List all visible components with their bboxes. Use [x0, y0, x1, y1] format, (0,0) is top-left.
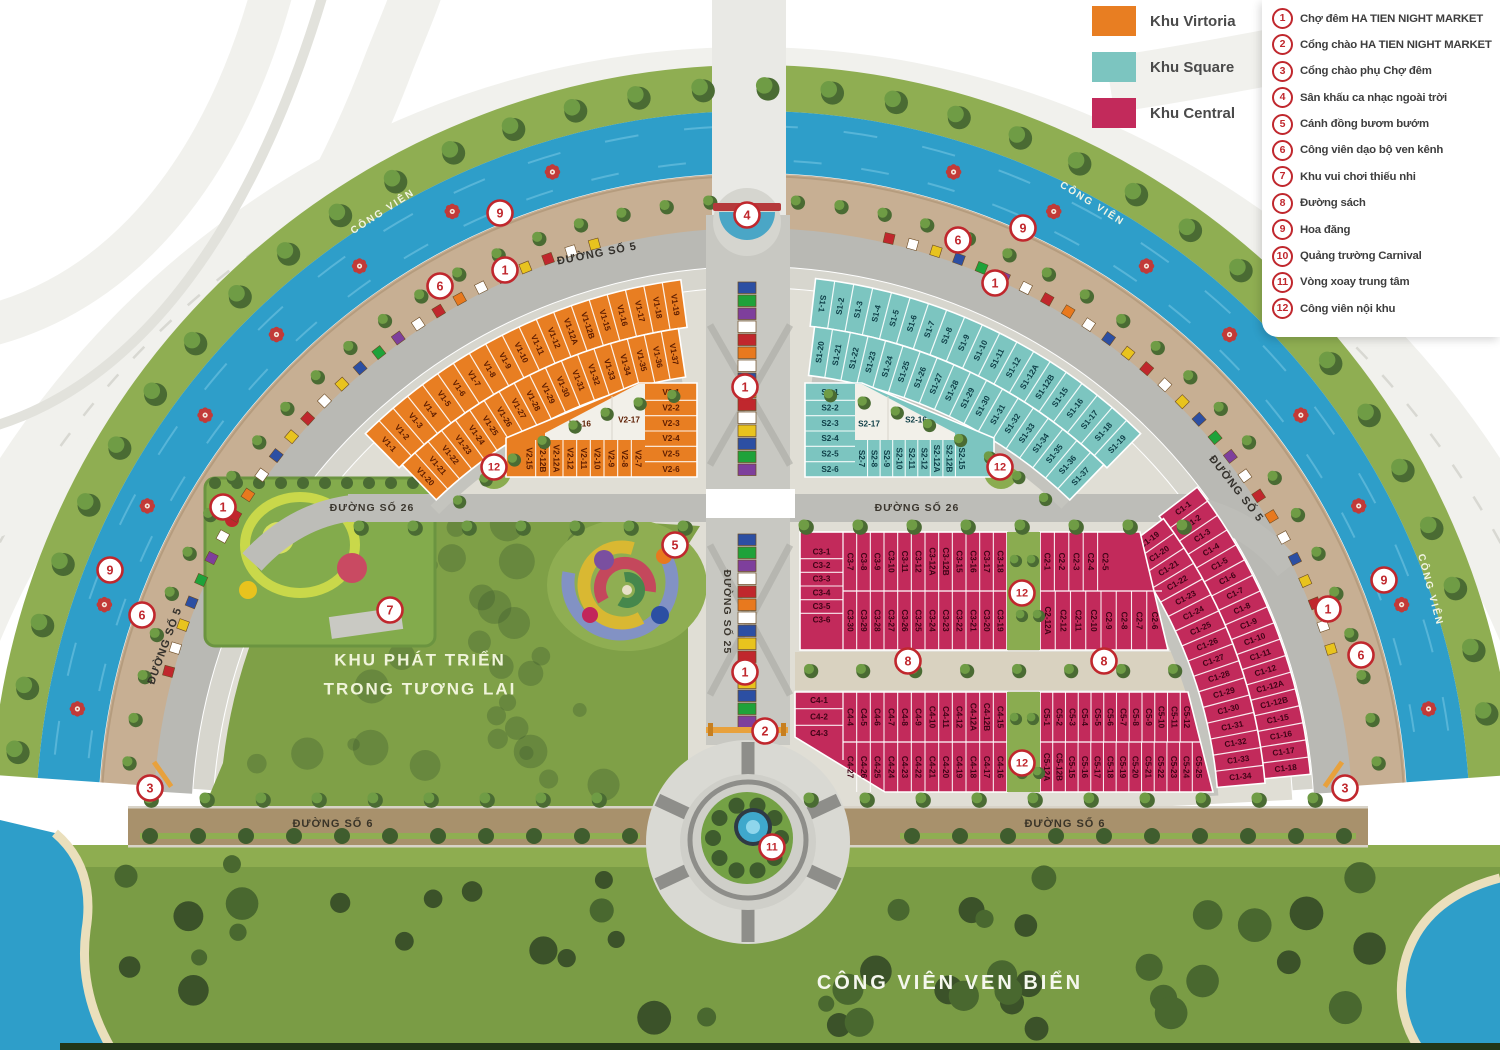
- map-text: V2-5: [662, 450, 680, 459]
- map-text: C3-12B: [941, 547, 950, 575]
- map-text: C3-12: [914, 550, 923, 573]
- map-text: C2-1: [1043, 553, 1052, 571]
- map-text: C5-5: [1093, 708, 1102, 726]
- map-text: 1: [742, 666, 749, 680]
- map-text: ĐƯỜNG SỐ 26: [330, 500, 415, 514]
- lantern-flower-icon: [1293, 407, 1309, 423]
- zone-color-legend: Khu VirtoriaKhu SquareKhu Central: [1092, 6, 1236, 144]
- map-text: C3-12A: [927, 547, 936, 575]
- map-text: C2-12: [1058, 609, 1067, 632]
- map-text: C5-17: [1093, 756, 1102, 779]
- map-text: S2-6: [821, 465, 839, 474]
- map-text: C2-4: [1086, 553, 1095, 571]
- legend-item-2: 2Cổng chào HA TIEN NIGHT MARKET: [1272, 34, 1498, 55]
- legend-item-label: Công viên nội khu: [1300, 303, 1395, 315]
- map-text: V2-17: [618, 416, 640, 425]
- map-text: C3-10: [886, 550, 895, 573]
- legend-number-badge: 2: [1272, 34, 1293, 55]
- legend-item-label: Cổng chào phụ Chợ đêm: [1300, 65, 1432, 77]
- lantern-flower-icon: [139, 498, 155, 514]
- map-text: C4-26: [859, 756, 868, 779]
- map-text: 3: [1342, 782, 1349, 796]
- map-text: V2-15: [524, 448, 533, 470]
- legend-item-12: 12Công viên nội khu: [1272, 298, 1498, 319]
- map-marker-4: 4: [735, 203, 760, 228]
- map-marker-9: 9: [98, 558, 123, 583]
- legend-item-label: Đường sách: [1300, 197, 1366, 209]
- map-text: C5-7: [1118, 708, 1127, 726]
- map-marker-9: 9: [1011, 216, 1036, 241]
- legend-number-badge: 1: [1272, 8, 1293, 29]
- map-marker-9: 9: [1372, 568, 1397, 593]
- map-text: C2-6: [1150, 612, 1159, 630]
- map-text: C4-7: [886, 708, 895, 726]
- map-text: C2-10: [1089, 609, 1098, 632]
- map-text: C5-12B: [1055, 753, 1064, 781]
- map-text: S2-11: [907, 448, 916, 470]
- map-text: C4-24: [886, 756, 895, 779]
- map-marker-9: 9: [488, 201, 513, 226]
- legend-number-badge: 11: [1272, 272, 1293, 293]
- zone-legend-row: Khu Central: [1092, 98, 1236, 128]
- zone-label: Khu Central: [1150, 105, 1235, 122]
- map-text: 11: [766, 842, 778, 854]
- map-text: 1: [742, 381, 749, 395]
- map-text: C4-4: [845, 708, 854, 726]
- map-text: S2-9: [882, 450, 891, 468]
- map-text: C4-19: [955, 756, 964, 779]
- map-text: 4: [744, 209, 751, 223]
- lantern-flower-icon: [1222, 327, 1238, 343]
- map-text: C5-8: [1131, 708, 1140, 726]
- map-marker-8: 8: [1092, 649, 1117, 674]
- map-marker-7: 7: [378, 598, 403, 623]
- legend-item-label: Vòng xoay trung tâm: [1300, 276, 1409, 288]
- map-text: TRONG TƯƠNG LAI: [324, 680, 517, 699]
- map-text: C5-9: [1144, 708, 1153, 726]
- map-text: V2-2: [662, 404, 680, 413]
- map-text: C5-3: [1067, 708, 1076, 726]
- legend-item-9: 9Hoa đăng: [1272, 219, 1498, 240]
- lantern-flower-icon: [444, 204, 460, 220]
- legend-item-label: Chợ đêm HA TIEN NIGHT MARKET: [1300, 13, 1483, 25]
- map-text: C4-21: [927, 756, 936, 779]
- lantern-flower-icon: [946, 164, 962, 180]
- map-text: C2-7: [1135, 612, 1144, 630]
- map-text: V2-11: [579, 448, 588, 470]
- map-text: C5-23: [1169, 756, 1178, 779]
- map-text: 12: [994, 462, 1006, 474]
- legend-item-label: Cổng chào HA TIEN NIGHT MARKET: [1300, 39, 1492, 51]
- lantern-flower-icon: [352, 258, 368, 274]
- legend-number-badge: 12: [1272, 298, 1293, 319]
- legend-item-7: 7Khu vui chơi thiếu nhi: [1272, 166, 1498, 187]
- map-text: C3-7: [845, 553, 854, 571]
- map-text: C4-16: [996, 756, 1005, 779]
- map-text: 6: [955, 234, 962, 248]
- map-marker-8: 8: [896, 649, 921, 674]
- map-text: C4-20: [941, 756, 950, 779]
- map-marker-1: 1: [493, 258, 518, 283]
- map-text: C2-2: [1057, 553, 1066, 571]
- map-text: 6: [139, 609, 146, 623]
- map-text: C4-5: [859, 708, 868, 726]
- map-text: 7: [387, 604, 394, 618]
- map-text: C5-22: [1156, 756, 1165, 779]
- map-text: 9: [107, 564, 114, 578]
- map-text: V2-4: [662, 434, 680, 443]
- map-text: 3: [147, 782, 154, 796]
- legend-number-badge: 5: [1272, 114, 1293, 135]
- map-marker-1: 1: [733, 375, 758, 400]
- map-marker-1: 1: [983, 271, 1008, 296]
- zone-legend-row: Khu Virtoria: [1092, 6, 1236, 36]
- map-text: V2-7: [634, 450, 643, 468]
- lantern-flower-icon: [1421, 701, 1437, 717]
- map-text: C2-9: [1104, 612, 1113, 630]
- map-text: C2-12A: [1043, 606, 1052, 634]
- map-text: 8: [905, 655, 912, 669]
- map-text: S2-12B: [945, 445, 954, 473]
- legend-number-badge: 3: [1272, 61, 1293, 82]
- map-text: C3-23: [941, 609, 950, 632]
- lantern-flower-icon: [269, 327, 285, 343]
- map-text: C4-9: [914, 708, 923, 726]
- lantern-flower-icon: [1351, 498, 1367, 514]
- map-text: C4-12B: [982, 703, 991, 731]
- map-text: C4-1: [810, 696, 828, 705]
- map-text: C3-25: [914, 609, 923, 632]
- street-26-east: [790, 494, 1192, 522]
- map-text: C5-18: [1105, 756, 1114, 779]
- map-text: S2-3: [821, 419, 839, 428]
- map-text: 1: [220, 501, 227, 515]
- legend-item-10: 10Quảng trường Carnival: [1272, 246, 1498, 267]
- layer-roundabout: [646, 740, 850, 944]
- map-marker-6: 6: [428, 274, 453, 299]
- legend-item-5: 5Cánh đồng bươm bướm: [1272, 114, 1498, 135]
- map-text: V2-10: [593, 448, 602, 470]
- map-text: C3-8: [859, 553, 868, 571]
- legend-item-label: Cánh đồng bươm bướm: [1300, 118, 1429, 130]
- map-marker-6: 6: [130, 603, 155, 628]
- map-text: C4-8: [900, 708, 909, 726]
- map-text: ĐƯỜNG SỐ 26: [875, 500, 960, 514]
- map-text: C3-30: [845, 609, 854, 632]
- map-text: C2-3: [1072, 553, 1081, 571]
- map-text: C3-15: [955, 550, 964, 573]
- map-text: S2-17: [858, 420, 880, 429]
- map-text: C5-1: [1042, 708, 1051, 726]
- map-marker-3: 3: [138, 776, 163, 801]
- map-marker-6: 6: [946, 228, 971, 253]
- map-text: C3-21: [968, 609, 977, 632]
- map-marker-12: 12: [988, 455, 1013, 480]
- map-text: S2-8: [869, 450, 878, 468]
- map-text: S2-2: [821, 404, 839, 413]
- map-text: C3-19: [996, 609, 1005, 632]
- zone-swatch: [1092, 52, 1136, 82]
- legend-number-badge: 4: [1272, 87, 1293, 108]
- legend-item-3: 3Cổng chào phụ Chợ đêm: [1272, 61, 1498, 82]
- zone-swatch: [1092, 98, 1136, 128]
- map-marker-11: 11: [760, 835, 785, 860]
- map-text: C3-29: [859, 609, 868, 632]
- zone-label: Khu Square: [1150, 59, 1234, 76]
- map-text: V2-8: [620, 450, 629, 468]
- masterplan-map: V1-1V1-2V1-3V1-4V1-5V1-6V1-7V1-8V1-9V1-1…: [0, 0, 1500, 1050]
- map-text: C3-1: [813, 547, 831, 556]
- lantern-flower-icon: [70, 701, 86, 717]
- legend-item-label: Hoa đăng: [1300, 224, 1350, 236]
- map-text: C5-16: [1080, 756, 1089, 779]
- legend-item-label: Công viên dạo bộ ven kênh: [1300, 144, 1443, 156]
- map-text: 8: [1101, 655, 1108, 669]
- map-marker-6: 6: [1349, 643, 1374, 668]
- lantern-flower-icon: [1139, 258, 1155, 274]
- map-text: C3-26: [900, 609, 909, 632]
- zone-swatch: [1092, 6, 1136, 36]
- map-text: 9: [497, 207, 504, 221]
- map-text: 9: [1381, 574, 1388, 588]
- legend-number-badge: 6: [1272, 140, 1293, 161]
- map-text: ĐƯỜNG SỐ 25: [721, 570, 735, 655]
- map-text: ĐƯỜNG SỐ 6: [1024, 816, 1105, 830]
- map-text: 1: [992, 277, 999, 291]
- map-text: C5-15: [1067, 756, 1076, 779]
- legend-item-4: 4Sân khấu ca nhạc ngoài trời: [1272, 87, 1498, 108]
- map-text: 1: [1325, 603, 1332, 617]
- map-text: C5-21: [1143, 756, 1152, 779]
- map-text: C3-17: [982, 550, 991, 573]
- map-text: V2-12: [565, 448, 574, 470]
- map-text: C3-28: [873, 609, 882, 632]
- map-legend-panel: 1Chợ đêm HA TIEN NIGHT MARKET2Cổng chào …: [1262, 0, 1500, 337]
- map-text: 5: [672, 539, 679, 553]
- legend-number-badge: 9: [1272, 219, 1293, 240]
- map-text: C4-12A: [968, 703, 977, 731]
- map-text: C5-11: [1169, 706, 1178, 728]
- map-text: C5-2: [1055, 708, 1064, 726]
- map-text: 12: [488, 462, 500, 474]
- lantern-flower-icon: [197, 407, 213, 423]
- map-text: C4-25: [873, 756, 882, 779]
- map-marker-1: 1: [211, 495, 236, 520]
- map-text: C4-6: [873, 708, 882, 726]
- map-text: S2-7: [857, 450, 866, 468]
- map-text: KHU PHÁT TRIỂN: [334, 651, 506, 670]
- map-marker-12: 12: [1010, 581, 1035, 606]
- map-text: CÔNG VIÊN VEN BIỂN: [817, 970, 1083, 994]
- legend-item-label: Khu vui chơi thiếu nhi: [1300, 171, 1416, 183]
- map-text: C4-11: [941, 706, 950, 728]
- map-text: C4-2: [810, 713, 828, 722]
- map-text: 6: [1358, 649, 1365, 663]
- legend-item-label: Quảng trường Carnival: [1300, 250, 1422, 262]
- map-text: C4-22: [914, 756, 923, 779]
- map-text: V2-9: [606, 450, 615, 468]
- map-marker-1: 1: [733, 660, 758, 685]
- legend-number-badge: 8: [1272, 193, 1293, 214]
- map-text: S2-4: [821, 434, 839, 443]
- map-marker-12: 12: [482, 455, 507, 480]
- map-text: 1: [502, 264, 509, 278]
- legend-item-8: 8Đường sách: [1272, 193, 1498, 214]
- map-text: C5-24: [1181, 756, 1190, 779]
- map-text: C3-3: [813, 575, 831, 584]
- map-text: C3-24: [927, 609, 936, 632]
- legend-item-1: 1Chợ đêm HA TIEN NIGHT MARKET: [1272, 8, 1498, 29]
- lantern-flower-icon: [1046, 204, 1062, 220]
- map-marker-5: 5: [663, 533, 688, 558]
- map-text: S2-10: [894, 448, 903, 470]
- map-text: C2-11: [1074, 610, 1083, 632]
- map-text: C3-4: [813, 588, 831, 597]
- map-text: C3-2: [813, 561, 831, 570]
- map-text: C3-18: [996, 550, 1005, 573]
- map-marker-3: 3: [1333, 776, 1358, 801]
- map-text: S2-12: [920, 448, 929, 470]
- map-text: C5-12: [1182, 706, 1191, 729]
- map-text: C3-22: [955, 609, 964, 632]
- lantern-flower-icon: [1394, 597, 1410, 613]
- legend-number-badge: 7: [1272, 166, 1293, 187]
- map-text: C2-5: [1100, 553, 1109, 571]
- map-text: C5-20: [1131, 756, 1140, 779]
- map-text: C4-15: [996, 706, 1005, 729]
- map-text: C3-6: [813, 616, 831, 625]
- map-text: 12: [1016, 758, 1028, 770]
- map-text: S2-12A: [932, 445, 941, 473]
- map-text: C3-5: [813, 602, 831, 611]
- map-text: V2-3: [662, 419, 680, 428]
- map-text: C5-4: [1080, 708, 1089, 726]
- map-text: C2-8: [1119, 612, 1128, 630]
- map-text: C4-18: [968, 756, 977, 779]
- c3-block: C3-1C3-2C3-3C3-4C3-5C3-6C3-7C3-8C3-9C3-1…: [800, 532, 1007, 650]
- map-text: C3-27: [886, 609, 895, 632]
- map-text: C3-20: [982, 609, 991, 632]
- map-text: C3-9: [873, 553, 882, 571]
- legend-number-badge: 10: [1272, 246, 1293, 267]
- map-marker-1: 1: [1316, 597, 1341, 622]
- map-text: C5-25: [1194, 756, 1203, 779]
- zone-legend-row: Khu Square: [1092, 52, 1236, 82]
- map-text: 12: [1016, 588, 1028, 600]
- map-text: C3-16: [968, 550, 977, 573]
- zone-label: Khu Virtoria: [1150, 13, 1236, 30]
- map-text: V2-6: [662, 465, 680, 474]
- map-marker-12: 12: [1010, 751, 1035, 776]
- map-text: ĐƯỜNG SỐ 6: [292, 816, 373, 830]
- map-text: 6: [437, 280, 444, 294]
- map-text: C5-19: [1118, 756, 1127, 779]
- map-text: C5-6: [1106, 708, 1115, 726]
- lantern-flower-icon: [97, 597, 113, 613]
- map-text: S2-15: [957, 448, 966, 470]
- map-text: 9: [1020, 222, 1027, 236]
- map-text: C4-27: [845, 756, 854, 779]
- map-text: C4-10: [927, 706, 936, 729]
- map-text: C4-12: [955, 706, 964, 729]
- lantern-flower-icon: [545, 164, 561, 180]
- map-text: S2-5: [821, 450, 839, 459]
- legend-item-label: Sân khấu ca nhạc ngoài trời: [1300, 92, 1447, 104]
- map-text: C3-11: [900, 551, 909, 573]
- map-text: C4-17: [982, 756, 991, 779]
- legend-item-11: 11Vòng xoay trung tâm: [1272, 272, 1498, 293]
- map-text: V2-12A: [552, 445, 561, 473]
- map-text: 2: [762, 725, 769, 739]
- map-text: C4-3: [810, 729, 828, 738]
- legend-item-6: 6Công viên dạo bộ ven kênh: [1272, 140, 1498, 161]
- map-text: C4-23: [900, 756, 909, 779]
- book-street: [795, 652, 1195, 690]
- c5-block: C5-1C5-2C5-3C5-4C5-5C5-6C5-7C5-8C5-9C5-1…: [1040, 692, 1213, 792]
- map-text: C5-10: [1157, 706, 1166, 729]
- map-marker-2: 2: [753, 719, 778, 744]
